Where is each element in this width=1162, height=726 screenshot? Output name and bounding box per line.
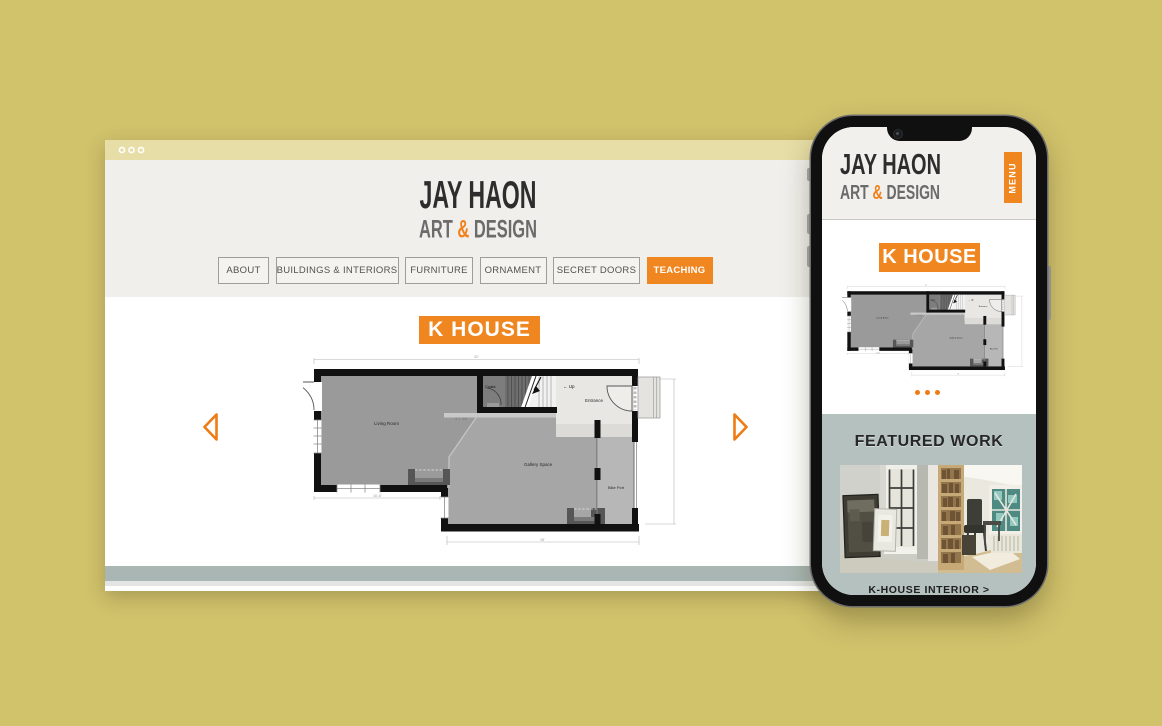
svg-text:ART & DESIGN: ART & DESIGN bbox=[419, 216, 537, 244]
svg-text:JAY HAON: JAY HAON bbox=[420, 174, 537, 217]
svg-text:JAY HAON: JAY HAON bbox=[840, 149, 941, 181]
svg-text:ART & DESIGN: ART & DESIGN bbox=[840, 181, 940, 204]
